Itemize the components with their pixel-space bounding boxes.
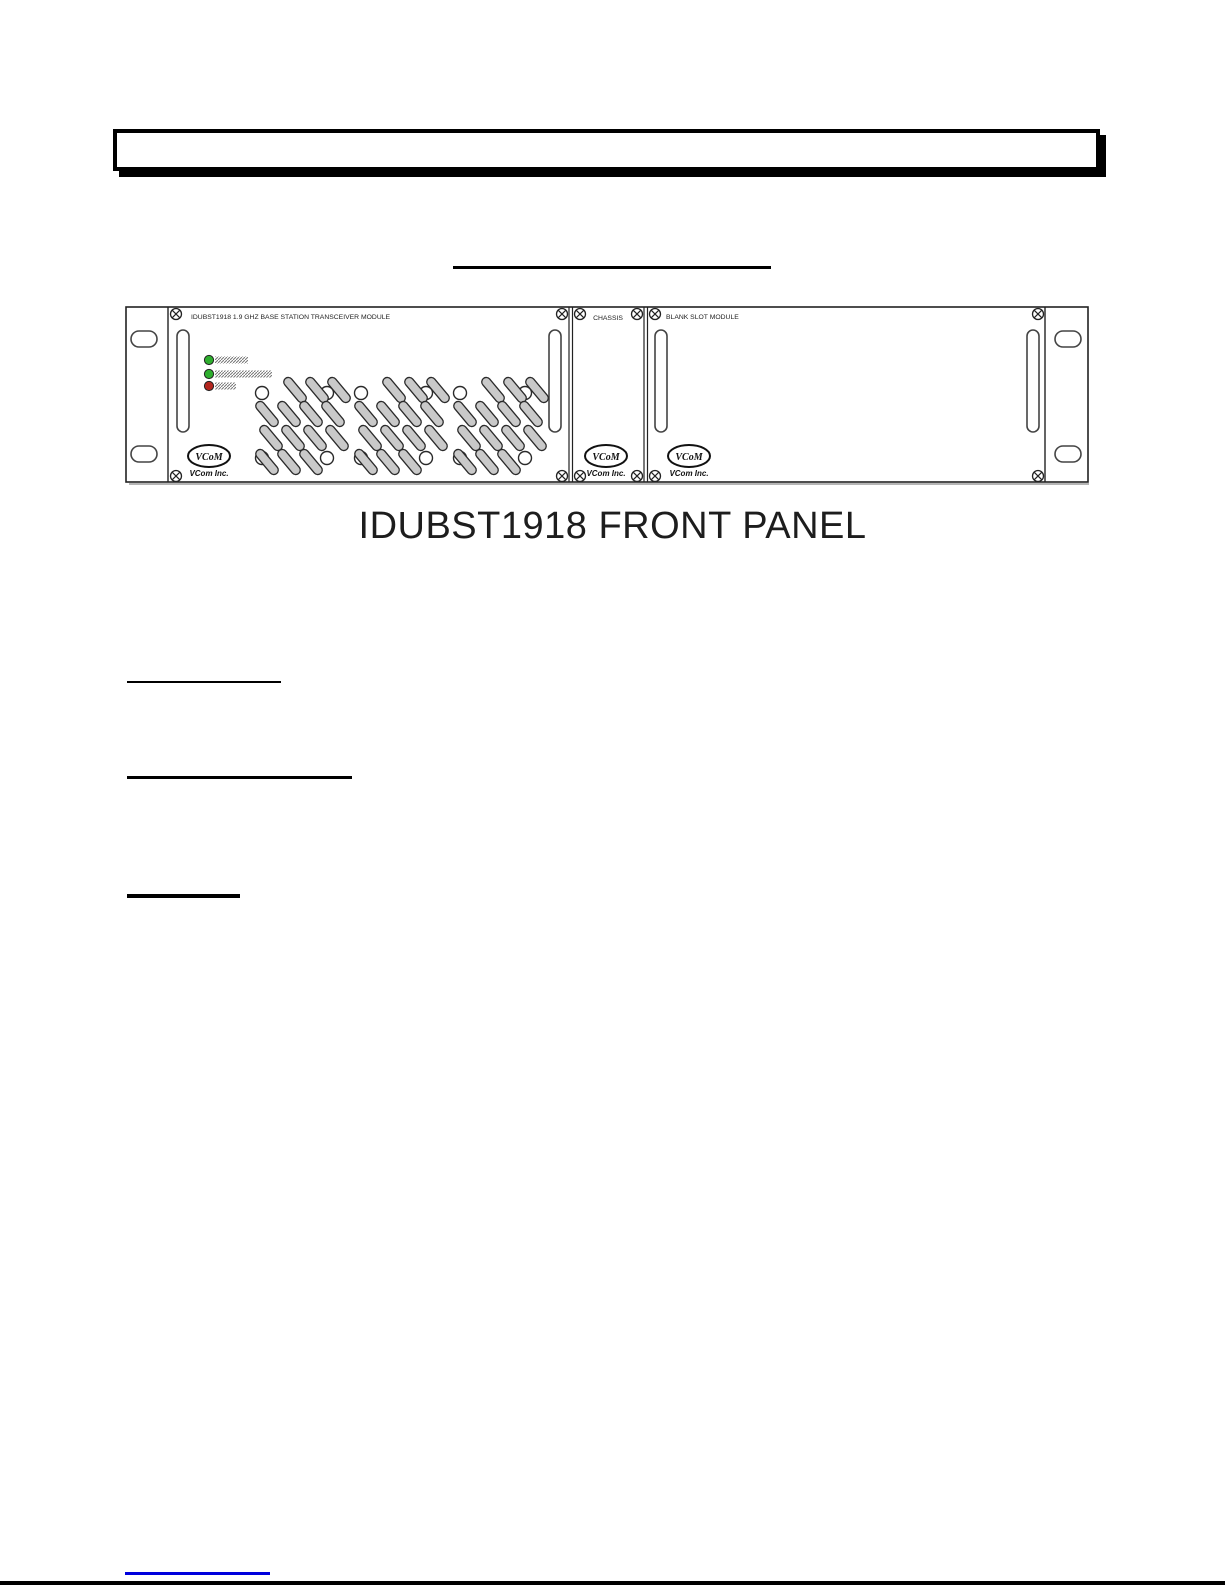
heading-underline-center: [453, 266, 771, 269]
page-bottom-rule: [0, 1581, 1225, 1585]
module-title: BLANK SLOT MODULE: [666, 314, 739, 321]
screw-icon: [1033, 471, 1044, 482]
heading-underline-3: [127, 894, 240, 898]
screw-icon: [557, 471, 568, 482]
vcom-logo: VCoM VCom Inc.: [668, 445, 710, 478]
vcom-logo-mark: VCoM: [195, 452, 223, 463]
figure-caption: IDUBST1918 FRONT PANEL: [0, 505, 1225, 548]
led-label-strip: [215, 383, 236, 390]
screw-icon: [557, 309, 568, 320]
module-handle: [655, 330, 667, 432]
screw-icon: [171, 309, 182, 320]
screw-icon: [650, 471, 661, 482]
screw-icon: [1033, 309, 1044, 320]
led-label-strip: [215, 357, 248, 364]
screw-icon: [632, 309, 643, 320]
screw-icon: [171, 471, 182, 482]
mount-slot: [1055, 331, 1081, 347]
screw-icon: [575, 471, 586, 482]
green-led-1: [204, 355, 213, 364]
front-panel-figure: IDUBST1918 1.9 GHZ BASE STATION TRANSCEI…: [125, 306, 1089, 483]
module-title: CHASSIS: [593, 315, 623, 322]
led-label-strip: [215, 371, 272, 378]
mount-slot: [1055, 446, 1081, 462]
title-box: [113, 129, 1100, 171]
module-handle: [177, 330, 189, 432]
red-led: [204, 381, 213, 390]
screw-icon: [650, 309, 661, 320]
module-title: IDUBST1918 1.9 GHZ BASE STATION TRANSCEI…: [191, 314, 391, 321]
vcom-logo: VCoM VCom Inc.: [188, 445, 230, 478]
green-led-2: [204, 369, 213, 378]
screw-icon: [632, 471, 643, 482]
document-page: IDUBST1918 1.9 GHZ BASE STATION TRANSCEI…: [0, 0, 1225, 1585]
mount-slot: [131, 446, 157, 462]
screw-icon: [575, 309, 586, 320]
vcom-logo-name: VCom Inc.: [586, 469, 625, 478]
footer-link[interactable]: [125, 1572, 270, 1575]
module-handle: [549, 330, 561, 432]
vcom-logo-mark: VCoM: [592, 452, 620, 463]
vcom-logo-mark: VCoM: [675, 452, 703, 463]
figure-shadow-line: [129, 483, 1089, 485]
heading-underline-1: [127, 681, 281, 683]
module-handle: [1027, 330, 1039, 432]
heading-underline-2: [127, 776, 352, 779]
mount-slot: [131, 331, 157, 347]
vcom-logo-name: VCom Inc.: [189, 469, 228, 478]
vcom-logo-name: VCom Inc.: [669, 469, 708, 478]
vcom-logo: VCoM VCom Inc.: [585, 445, 627, 478]
